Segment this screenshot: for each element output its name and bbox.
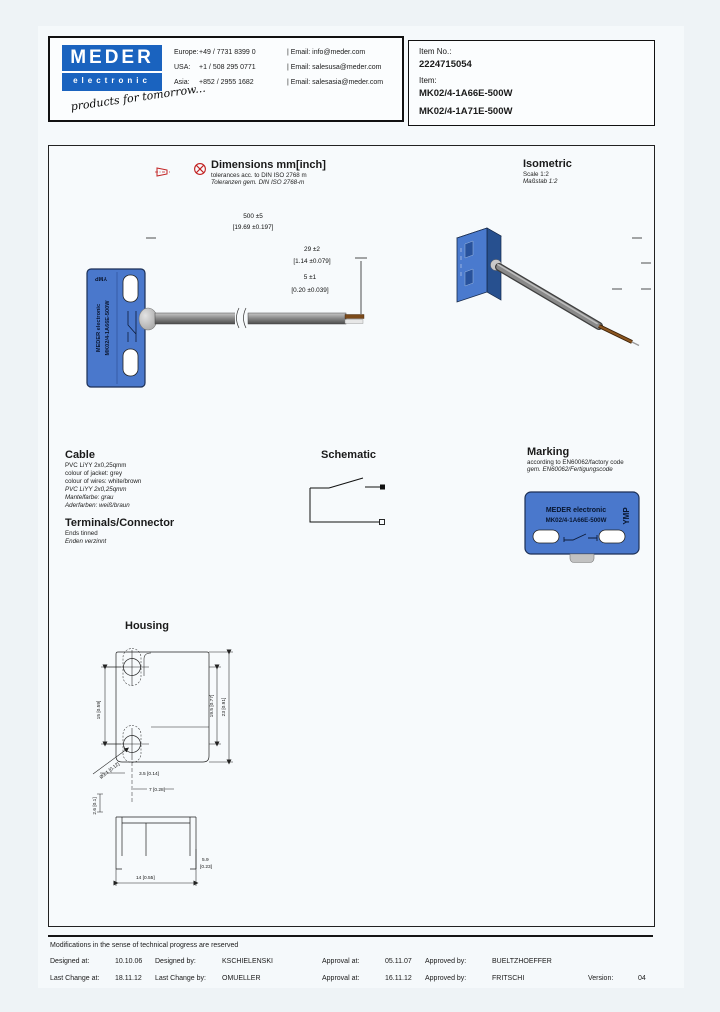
housing-profile-view [116,817,196,869]
cable-line-de-3: Aderfarben: weiß/braun [65,502,130,509]
housing-dim-hole-dia: Ø3.1 [0.12] [99,761,121,780]
item-box: Item No.: 2224715054 Item: MK02/4-1A66E-… [408,40,655,126]
housing-dim-depth: 5.9 [202,857,209,863]
body-code-text: YMP [95,275,107,281]
item-name-2: MK02/4-1A71E-500W [419,106,512,117]
approved-by-label: Approved by: [425,975,466,982]
marking-code-text: YMP [622,507,631,525]
approved-by-label: Approved by: [425,958,466,965]
meder-logo: MEDER electronic [62,45,162,91]
mount-slot-bottom [123,349,138,376]
version-label: Version: [588,975,613,982]
strain-relief-dome [139,308,157,330]
last-change-at-label: Last Change at: [50,975,99,982]
wire-white [345,320,363,324]
item-no-label: Item No.: [419,47,451,56]
housing-drawing: 15 [0.59] 19.5 [0.77] 23 [0.91] Ø3.1 [0.… [91,634,321,904]
dim-overall: 500 ±5 [243,213,263,220]
mount-slot-top [123,275,138,302]
housing-dim-hole-spacing: 15 [0.59] [96,701,102,720]
marking-title: Marking [527,446,569,458]
contact-region: Europe: [174,49,199,56]
marking-part-text: MK02/4-1A66E-500W [546,517,607,524]
last-change-by-label: Last Change by: [155,975,206,982]
body-part-text: MK02/4-1A66E-500W [105,300,111,356]
item-label: Item: [419,76,437,85]
schematic-drawing [301,476,391,531]
marking-de: gem. EN60062/Fertigungscode [527,466,613,473]
designed-at-label: Designed at: [50,958,89,965]
contact-row-usa: USA: +1 / 508 295 0771 | Email: salesusa… [174,64,398,79]
terminals-de: Enden verzinnt [65,538,106,545]
marking-brand-text: MEDER electronic [546,507,606,514]
approved-by-value: FRITSCHI [492,975,524,982]
approval-at-value: 16.11.12 [385,975,412,982]
housing-dim-inner-height: 19.5 [0.77] [209,695,215,718]
logo-name: MEDER [62,45,162,73]
contact-region: USA: [174,64,190,71]
wire-brown [345,315,364,319]
isometric-cable [498,265,639,346]
contact-email: | Email: info@meder.com [287,49,365,56]
contact-phone: +1 / 508 295 0771 [199,64,256,71]
last-change-at-value: 18.11.12 [115,975,142,982]
contact-phone: +49 / 7731 8399 0 [199,49,256,56]
designed-by-value: KSCHIELENSKI [222,958,273,965]
housing-dim-offset2: 7 [0.28] [149,787,165,793]
terminals-title: Terminals/Connector [65,517,174,529]
contact-email: | Email: salesasia@meder.com [287,79,383,86]
body-brand-text: MEDER electronic [96,304,102,352]
item-name-1: MK02/4-1A66E-500W [419,88,512,99]
cable-drawing [139,308,364,330]
dimension-annotations: 500 ±5 [19.69 ±0.197] 29 ±2 [1.14 ±0.079… [146,213,651,314]
dim-end: 5 ±1 [304,274,317,281]
housing-dim-height: 23 [0.91] [221,698,227,717]
contact-phone: +852 / 2955 1682 [199,79,254,86]
last-change-by-value: OMUELLER [222,975,261,982]
cable-line-en-3: colour of wires: white/brown [65,478,141,485]
housing-title: Housing [125,620,169,632]
cable-line-en-2: colour of jacket: grey [65,470,122,477]
dim-mid-inch: [1.14 ±0.079] [293,258,330,265]
dim-overall-inch: [19.69 ±0.197] [233,224,274,231]
dim-end-inch: [0.20 ±0.039] [291,287,328,294]
designed-by-label: Designed by: [155,958,196,965]
contact-row-asia: Asia: +852 / 2955 1682 | Email: salesasi… [174,79,398,94]
marking-drawing: MEDER electronic MK02/4-1A66E-500W YMP [519,482,654,572]
contact-email: | Email: salesusa@meder.com [287,64,382,71]
isometric-view [457,228,502,302]
mount-slot-left [533,530,559,543]
dim-mid: 29 ±2 [304,246,320,253]
drawing-frame: Dimensions mm[inch] tolerances acc. to D… [48,145,655,927]
schematic-title: Schematic [321,449,376,461]
sensor-body-front: YMP MEDER electronic MK02/4-1A66E-500W [87,269,145,387]
contact-region: Asia: [174,79,190,86]
logo-sub: electronic [62,73,162,89]
approval-at-label: Approval at: [322,975,359,982]
cable-line-en-1: PVC LiYY 2x0,25qmm [65,462,126,469]
cable-title: Cable [65,449,95,461]
mount-slot-right [599,530,625,543]
cable-line-de-2: Mantelfarbe: grau [65,494,114,501]
cable-line-de-1: PVC LiYY 2x0,25qmm [65,486,126,493]
designed-at-value: 10.10.06 [115,958,142,965]
footer-note: Modifications in the sense of technical … [50,942,238,949]
version-value: 04 [638,975,646,982]
dimension-drawing: YMP MEDER electronic MK02/4-1A66E-500W 5… [49,146,654,446]
housing-dim-depth-inch: [0.23] [200,864,212,870]
housing-dim-thickness: 2.6 [0.1] [92,797,98,814]
housing-front-outline [116,652,209,762]
footer: Modifications in the sense of technical … [48,935,653,992]
approval-at-label: Approval at: [322,958,359,965]
approved-by-value: BUELTZHOEFFER [492,958,552,965]
terminals-en: Ends tinned [65,530,98,537]
item-no-value: 2224715054 [419,59,472,70]
housing-dim-width: 14 [0.55] [136,875,155,881]
header-contact-box: MEDER electronic products for tomorrow..… [48,36,404,122]
contact-row-europe: Europe: +49 / 7731 8399 0 | Email: info@… [174,49,398,64]
cable-exit-tab [570,554,594,563]
approval-at-value: 05.11.07 [385,958,412,965]
housing-dim-offset1: 3.5 [0.14] [139,771,159,777]
